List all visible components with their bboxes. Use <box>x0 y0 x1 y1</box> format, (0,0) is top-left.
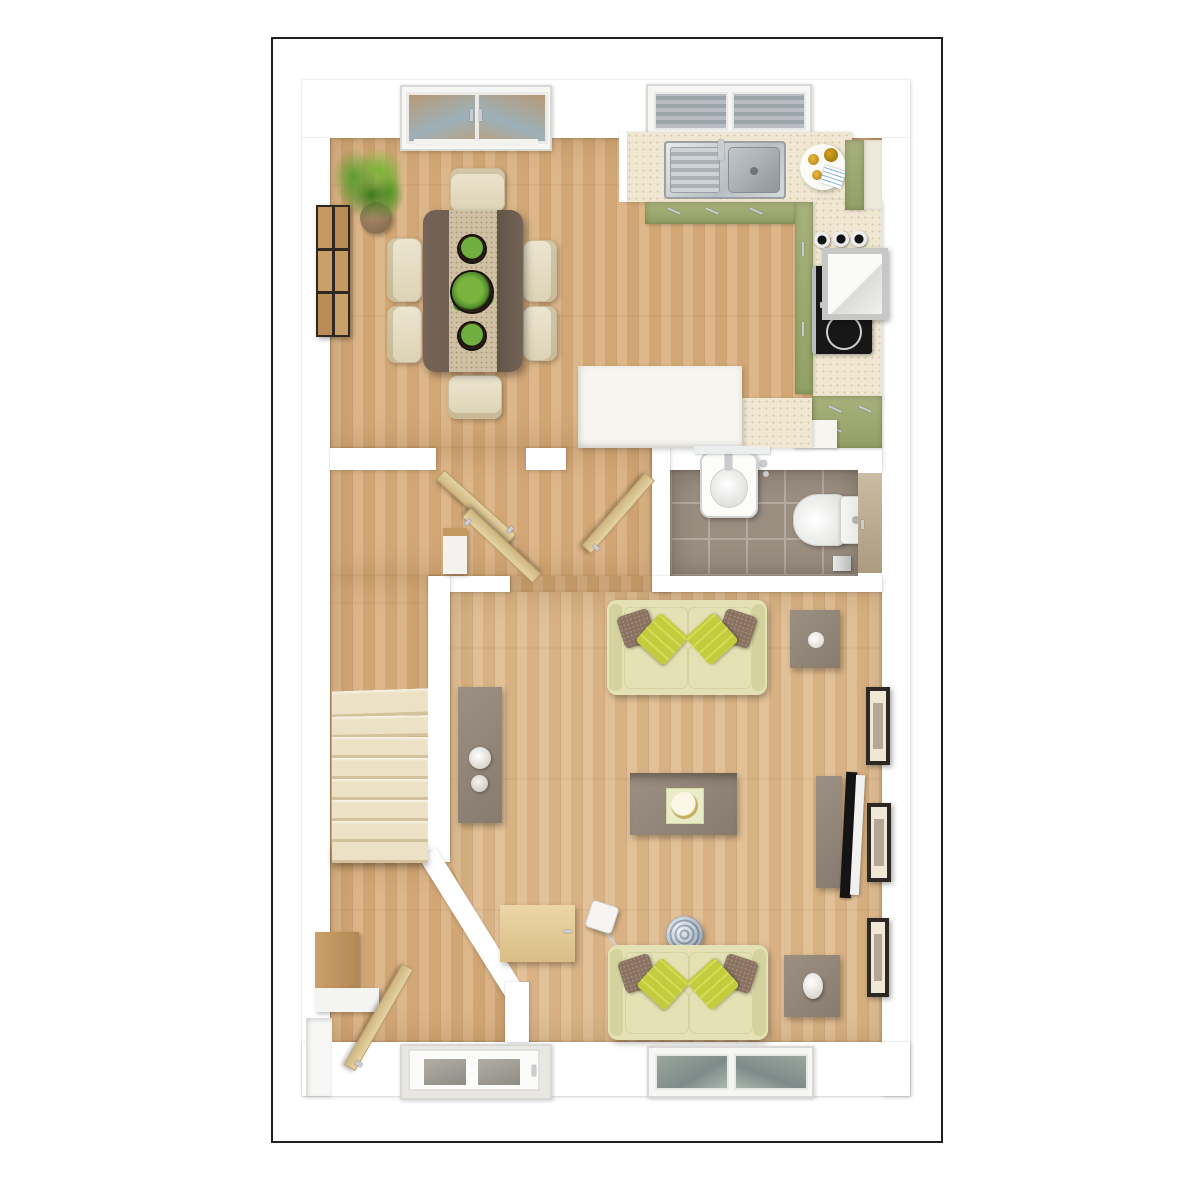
dining-chair-head-bottom <box>448 375 502 419</box>
living-window <box>647 1046 814 1098</box>
wc-basin <box>700 452 758 518</box>
toilet-roll-holder-icon <box>833 556 851 571</box>
front-door-leaf <box>408 1049 540 1091</box>
dining-chair-left-2 <box>387 306 422 363</box>
candle-icon <box>808 632 824 648</box>
counter-end-panel <box>619 132 627 202</box>
art-tile <box>335 251 349 292</box>
picture-art <box>874 934 882 981</box>
floor-plan-canvas <box>0 0 1200 1200</box>
counter-strip-mid <box>742 398 812 448</box>
wc-accessory-icon <box>763 471 769 477</box>
art-tile <box>335 294 349 335</box>
egg-lamp-icon <box>803 973 823 999</box>
sofa-lower <box>608 945 768 1040</box>
corridor-right-wall <box>428 576 450 862</box>
art-tile <box>318 251 332 292</box>
cabinet-handle-icon <box>802 322 804 336</box>
wood-wall-art <box>316 205 350 337</box>
entry-wall-niche <box>306 1018 332 1096</box>
sink-tap-icon <box>718 139 724 161</box>
kitchen-window-pane-left <box>654 92 728 130</box>
stair-step <box>332 821 428 842</box>
stair-step <box>332 715 428 738</box>
french-door-threshold <box>414 139 538 146</box>
picture-frame <box>867 803 891 882</box>
front-door <box>400 1044 552 1100</box>
art-tile <box>335 207 349 248</box>
french-door-left-glass <box>406 92 478 144</box>
decor-bowl-icon <box>469 747 491 769</box>
breakfast-tray <box>800 144 846 190</box>
cabinet-handle-icon <box>705 207 719 215</box>
kitchen-window <box>646 84 812 138</box>
canister-icon <box>833 231 849 247</box>
art-tile <box>318 294 332 335</box>
hall-top-wall-seg2 <box>526 448 566 470</box>
wc-tap-icon <box>725 452 732 470</box>
living-window-pane-right <box>734 1054 808 1090</box>
dining-chair-right-2 <box>523 306 557 361</box>
side-table-lower <box>784 955 840 1017</box>
table-planter-3 <box>459 323 485 349</box>
wc-shelf <box>694 446 770 454</box>
stair-landing <box>332 688 428 717</box>
table-planter-2 <box>452 272 492 312</box>
wc-door-handle-icon <box>861 520 864 529</box>
sideboard <box>458 687 502 823</box>
hall-cabinet-top <box>443 528 467 536</box>
juice-bottle-icon <box>824 148 838 162</box>
sink-plughole-icon <box>750 167 758 175</box>
sink-bowl <box>728 147 780 193</box>
wc-left-wall <box>652 448 670 592</box>
candle-bowl-icon <box>671 792 698 819</box>
hall-cabinet <box>443 528 467 574</box>
coffee-table <box>630 773 737 835</box>
wc-door-closed <box>858 470 882 576</box>
tall-unit-green <box>845 140 864 210</box>
entry-console-wood-top <box>315 932 359 988</box>
side-table-upper <box>790 610 840 668</box>
cabinet-handle-icon <box>802 242 804 256</box>
stair-step <box>332 737 428 758</box>
drawer-handle-icon <box>858 405 872 413</box>
front-door-handle-icon <box>532 1065 536 1076</box>
living-window-pane-left <box>655 1054 729 1090</box>
wc-accessory-icon <box>760 460 767 467</box>
toilet-bowl <box>793 494 847 546</box>
picture-frame <box>866 687 890 765</box>
sink-drainer <box>670 147 720 193</box>
exterior-wall-bottom <box>302 1042 910 1096</box>
door-handle-icon <box>506 526 514 534</box>
entry-console-shelf <box>315 988 379 1012</box>
stair-step <box>332 800 428 821</box>
tv-unit <box>816 772 866 902</box>
french-door-handles-icon-2 <box>479 109 482 121</box>
stair-step-bottom <box>332 842 428 863</box>
dining-table <box>423 210 523 372</box>
hood-body <box>828 254 882 314</box>
front-door-glass <box>478 1059 520 1085</box>
front-door-glass <box>424 1059 466 1085</box>
stair-step <box>332 779 428 800</box>
french-door-right-glass <box>476 92 548 144</box>
tv-cabinet <box>816 776 842 888</box>
kitchen-window-pane-right <box>732 92 806 130</box>
kitchen-sink <box>664 141 786 199</box>
french-door-handles-icon <box>470 109 473 121</box>
table-planter-1 <box>459 236 485 262</box>
picture-art <box>874 819 884 866</box>
white-peninsula <box>578 366 742 448</box>
dining-chair-head-top <box>450 168 505 212</box>
cooker-hood <box>822 248 888 320</box>
dining-chair-right-1 <box>523 240 557 302</box>
sofa-upper <box>607 600 767 695</box>
entry-living-wall <box>505 982 529 1042</box>
candle-tray <box>666 788 704 824</box>
door-handle-icon <box>464 518 472 526</box>
tall-unit-cream <box>864 140 882 210</box>
dining-chair-left-1 <box>387 238 422 302</box>
cabinet-handle-icon <box>749 207 763 215</box>
picture-art <box>873 703 883 749</box>
art-tile <box>318 207 332 248</box>
base-cabinets-right-face <box>795 202 813 394</box>
canister-icon <box>851 231 867 247</box>
hall-top-wall-seg1 <box>330 448 436 470</box>
wc-basin-bowl <box>710 468 748 508</box>
decor-bowl-icon <box>471 775 488 792</box>
juice-glass-icon <box>808 154 819 165</box>
stair-step <box>332 758 428 779</box>
exterior-wall-top <box>302 80 910 138</box>
picture-frame <box>867 918 889 997</box>
wc-bottom-wall <box>652 576 882 592</box>
cabinet-handle-icon <box>667 207 681 215</box>
french-doors <box>400 85 552 151</box>
base-cabinets-top <box>645 202 797 224</box>
canister-icon <box>814 232 830 248</box>
drawer-handle-icon <box>828 405 842 413</box>
